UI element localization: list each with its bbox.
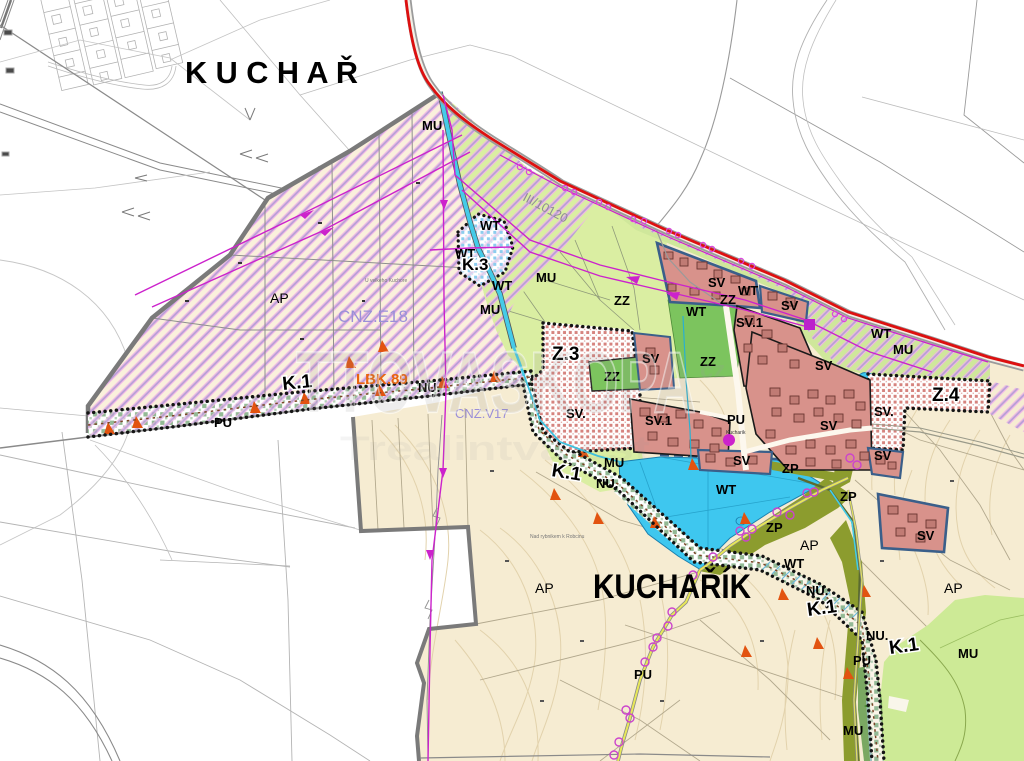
svg-text:WT: WT xyxy=(686,304,706,319)
svg-text:SV.: SV. xyxy=(874,404,894,419)
svg-text:SV: SV xyxy=(781,298,799,313)
svg-text:TTOVASKOPA: TTOVASKOPA xyxy=(296,335,696,431)
svg-text:SV: SV xyxy=(874,448,892,463)
svg-text:Kucharik: Kucharik xyxy=(726,430,746,436)
svg-text:PU: PU xyxy=(214,415,232,430)
svg-text:Z.4: Z.4 xyxy=(932,385,960,406)
svg-text:Nad rybnikem k Robcinu: Nad rybnikem k Robcinu xyxy=(530,534,585,540)
svg-text:SV: SV xyxy=(820,418,838,433)
svg-text:WT: WT xyxy=(784,556,804,571)
svg-text:NU.: NU. xyxy=(866,628,888,643)
svg-text:PU: PU xyxy=(634,667,652,682)
svg-text:KUCHAŘÍK: KUCHAŘÍK xyxy=(593,568,751,606)
svg-text:PU: PU xyxy=(727,412,745,427)
svg-text:MU: MU xyxy=(480,302,500,317)
svg-text:K.1: K.1 xyxy=(806,596,839,621)
svg-text:K.3: K.3 xyxy=(462,255,488,274)
svg-text:cz: cz xyxy=(700,357,725,384)
svg-text:SV: SV xyxy=(815,358,833,373)
svg-text:Trealintva est: Trealintva est xyxy=(340,430,650,468)
svg-text:MU: MU xyxy=(958,646,978,661)
svg-text:ZP: ZP xyxy=(766,520,783,535)
svg-text:ZZ: ZZ xyxy=(720,292,736,307)
svg-text:AP: AP xyxy=(800,537,819,553)
svg-text:WT: WT xyxy=(716,482,736,497)
svg-text:PU: PU xyxy=(853,653,871,668)
svg-text:WT: WT xyxy=(738,283,758,298)
svg-text:NU.: NU. xyxy=(596,476,618,491)
svg-text:NU.: NU. xyxy=(806,583,828,598)
svg-text:MU: MU xyxy=(893,342,913,357)
svg-text:WT: WT xyxy=(871,326,891,341)
svg-text:ZZ: ZZ xyxy=(614,293,630,308)
svg-text:MU: MU xyxy=(422,118,442,133)
svg-text:AP: AP xyxy=(535,580,554,596)
svg-text:K U C H A Ř: K U C H A Ř xyxy=(185,54,358,90)
svg-text:CNZ.E18: CNZ.E18 xyxy=(338,307,408,326)
svg-text:ZP: ZP xyxy=(840,489,857,504)
svg-text:MU: MU xyxy=(536,270,556,285)
svg-text:K.1: K.1 xyxy=(888,634,921,659)
svg-text:AP: AP xyxy=(270,290,289,306)
svg-text:AP: AP xyxy=(944,580,963,596)
svg-text:MU: MU xyxy=(843,723,863,738)
svg-text:SV.1: SV.1 xyxy=(736,315,763,330)
svg-text:SV: SV xyxy=(917,528,935,543)
svg-text:WT: WT xyxy=(480,218,500,233)
svg-text:U velkeho Kuchore: U velkeho Kuchore xyxy=(365,278,407,284)
svg-text:WT: WT xyxy=(492,278,512,293)
svg-text:SV: SV xyxy=(733,453,751,468)
svg-text:SV: SV xyxy=(708,275,726,290)
svg-text:ZP: ZP xyxy=(782,461,799,476)
